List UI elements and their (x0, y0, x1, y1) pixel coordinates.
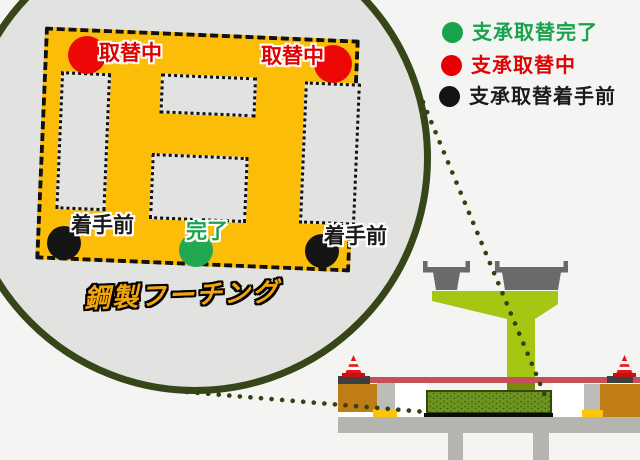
legend-item-completed: 支承取替完了 (442, 22, 598, 43)
footing-cutout-left (55, 71, 111, 211)
bearing-label-top-left: 取替中 (99, 43, 162, 64)
work-gap-right (553, 383, 584, 417)
traffic-cone-right (611, 355, 638, 377)
jack-block-left (373, 409, 397, 417)
scaffold-leg-left (448, 433, 463, 460)
legend-item-not-started: 支承取替着手前 (439, 86, 616, 107)
girder-left (423, 261, 470, 290)
scaffold-leg-right (533, 433, 549, 460)
legend-item-in-progress: 支承取替中 (441, 55, 576, 76)
jack-block-right (582, 410, 603, 418)
bridge-cross-section (330, 255, 640, 460)
legend-dot-not-started-icon (439, 86, 460, 107)
traffic-cone-left (340, 355, 367, 377)
scaffold-platform (338, 417, 640, 433)
work-gap-bottom-left (338, 412, 373, 417)
steel-footing-section (427, 391, 551, 413)
deck-block-left (338, 376, 370, 384)
bridge-deck (338, 377, 640, 383)
girder-right (495, 261, 568, 290)
bearing-label-bottom-center: 完了 (186, 221, 228, 242)
legend-label-in-progress: 支承取替中 (471, 56, 576, 76)
support-wall-right (584, 384, 600, 411)
abutment-left (338, 384, 377, 412)
footing-cutout-right (299, 81, 361, 225)
deck-block-right (607, 376, 633, 383)
legend-dot-completed-icon (442, 22, 463, 43)
legend-label-completed: 支承取替完了 (472, 23, 598, 43)
bearing-label-bottom-right: 着手前 (324, 226, 387, 247)
footing-cutout-center (149, 153, 249, 223)
bearing-label-top-right: 取替中 (261, 46, 324, 67)
work-gap-left (395, 383, 427, 417)
diagram-canvas: 取替中 取替中 着手前 完了 着手前 鋼製フーチング 支承取替完了 支承取替中 … (0, 0, 640, 460)
footing-caption: 鋼製フーチング (84, 279, 281, 312)
legend-dot-in-progress-icon (441, 55, 462, 76)
bearing-label-bottom-left: 着手前 (71, 215, 134, 236)
legend-label-not-started: 支承取替着手前 (469, 87, 616, 107)
footing-cutout-top-center (159, 73, 257, 117)
abutment-right (600, 384, 640, 417)
